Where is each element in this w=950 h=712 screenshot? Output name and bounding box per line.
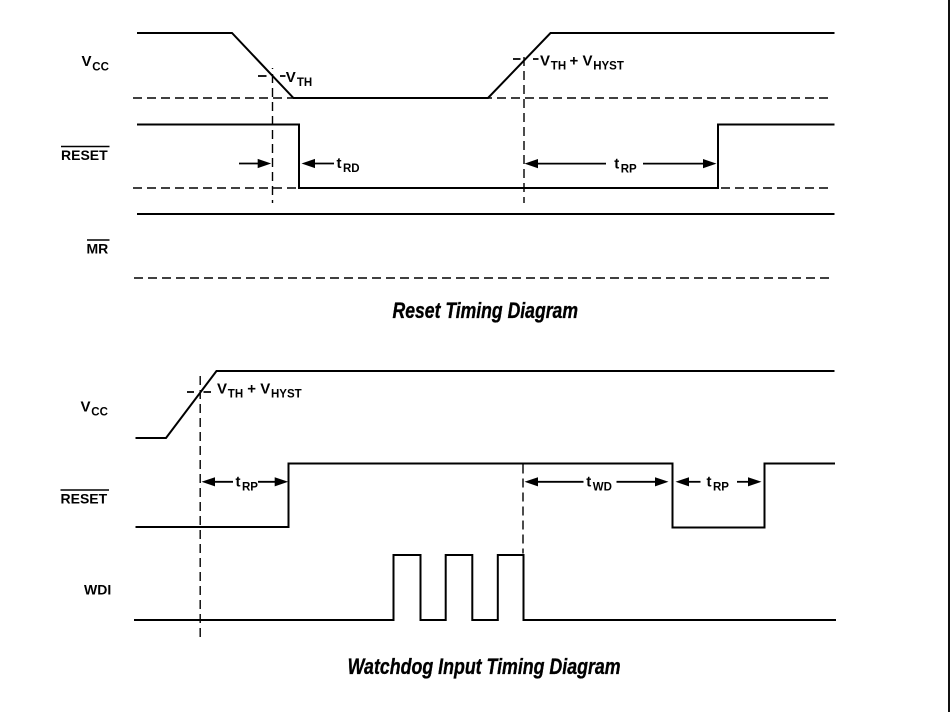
svg-text:HYST: HYST	[271, 389, 302, 401]
svg-text:RD: RD	[343, 163, 360, 175]
svg-text:t: t	[707, 474, 712, 491]
svg-text:RESET: RESET	[61, 491, 108, 507]
svg-text:CC: CC	[92, 62, 109, 74]
svg-text:+: +	[570, 53, 579, 70]
svg-text:HYST: HYST	[593, 61, 624, 73]
svg-text:V: V	[540, 53, 550, 70]
svg-text:t: t	[337, 155, 342, 172]
svg-text:TH: TH	[228, 389, 243, 401]
svg-text:t: t	[586, 474, 591, 491]
svg-text:V: V	[82, 53, 92, 70]
svg-text:RESET: RESET	[61, 147, 108, 163]
svg-text:t: t	[236, 474, 241, 491]
svg-text:MR: MR	[87, 241, 109, 257]
svg-text:WD: WD	[593, 482, 612, 494]
svg-text:TH: TH	[551, 61, 566, 73]
svg-text:RP: RP	[242, 482, 258, 494]
svg-text:V: V	[583, 53, 593, 70]
svg-text:V: V	[217, 381, 227, 398]
svg-text:CC: CC	[91, 407, 108, 419]
svg-text:Watchdog Input Timing Diagram: Watchdog Input Timing Diagram	[348, 654, 621, 679]
svg-text:Reset Timing Diagram: Reset Timing Diagram	[393, 298, 579, 323]
svg-text:t: t	[614, 155, 619, 172]
svg-text:+: +	[247, 381, 256, 398]
svg-text:V: V	[260, 381, 270, 398]
svg-text:RP: RP	[621, 163, 637, 175]
svg-text:V: V	[286, 69, 296, 86]
svg-text:RP: RP	[713, 482, 729, 494]
svg-text:TH: TH	[297, 77, 312, 89]
svg-text:WDI: WDI	[84, 582, 111, 598]
svg-text:V: V	[81, 399, 91, 416]
